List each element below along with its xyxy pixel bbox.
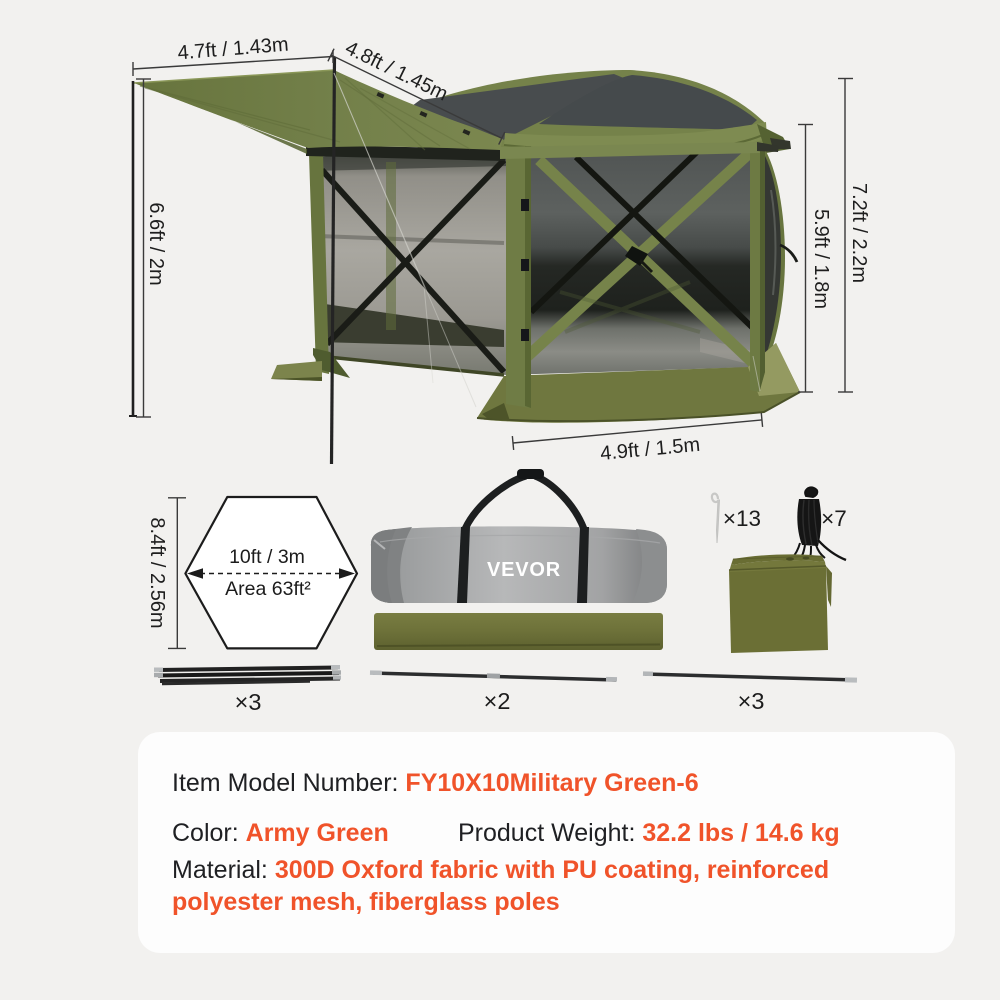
svg-text:×3: ×3 [235, 689, 262, 715]
svg-text:×7: ×7 [821, 506, 847, 531]
svg-text:6.6ft / 2m: 6.6ft / 2m [145, 202, 167, 285]
svg-text:×13: ×13 [723, 506, 761, 531]
svg-text:4.9ft / 1.5m: 4.9ft / 1.5m [599, 434, 701, 465]
svg-text:10ft / 3m: 10ft / 3m [229, 546, 305, 568]
svg-text:5.9ft / 1.8m: 5.9ft / 1.8m [810, 209, 832, 309]
svg-text:8.4ft / 2.56m: 8.4ft / 2.56m [146, 517, 168, 628]
svg-text:VEVOR: VEVOR [487, 559, 561, 581]
svg-text:Area 63ft²: Area 63ft² [225, 578, 311, 600]
svg-text:7.2ft / 2.2m: 7.2ft / 2.2m [848, 183, 870, 283]
svg-text:×3: ×3 [738, 688, 765, 714]
svg-text:×2: ×2 [484, 688, 511, 714]
